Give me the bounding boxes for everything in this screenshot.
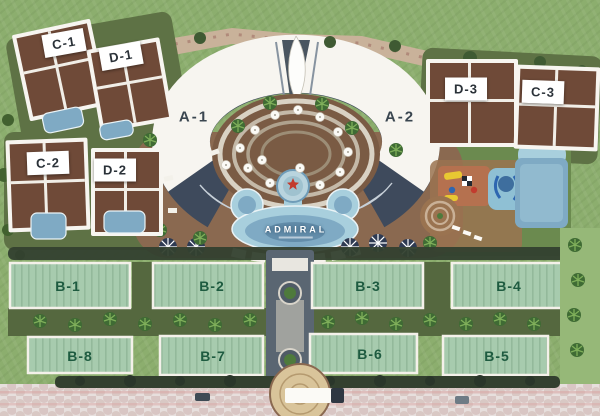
block-label-b8: B-8	[67, 349, 93, 363]
pool-logo-text: ADMIRAL	[265, 226, 328, 239]
truck	[285, 388, 331, 403]
car	[455, 396, 469, 404]
block-label-b6: B-6	[357, 347, 383, 361]
block-label-b5: B-5	[484, 349, 510, 363]
site-plan: C-1 D-1 C-2 D-2 D-3 C-3 A-1 A-2 B-1 B-2 …	[0, 0, 600, 416]
block-label-d3: D-3	[445, 78, 487, 101]
lap-pool	[515, 143, 568, 228]
starfish-fountain	[277, 170, 309, 202]
block-label-b3: B-3	[355, 279, 381, 293]
block-label-b7: B-7	[200, 349, 226, 363]
block-label-b2: B-2	[199, 279, 225, 293]
right-lawn	[560, 228, 600, 386]
block-label-b4: B-4	[496, 279, 522, 293]
block-label-c2: C-2	[27, 151, 70, 175]
block-label-c3: C-3	[522, 80, 565, 104]
car	[195, 393, 210, 401]
spiral-garden	[420, 196, 460, 236]
block-label-d2: D-2	[94, 159, 136, 182]
villa-d3	[426, 59, 518, 147]
block-label-b1: B-1	[55, 279, 81, 293]
villa-c3	[514, 65, 600, 152]
block-label-a2: A-2	[385, 110, 415, 125]
block-label-a1: A-1	[179, 110, 209, 125]
